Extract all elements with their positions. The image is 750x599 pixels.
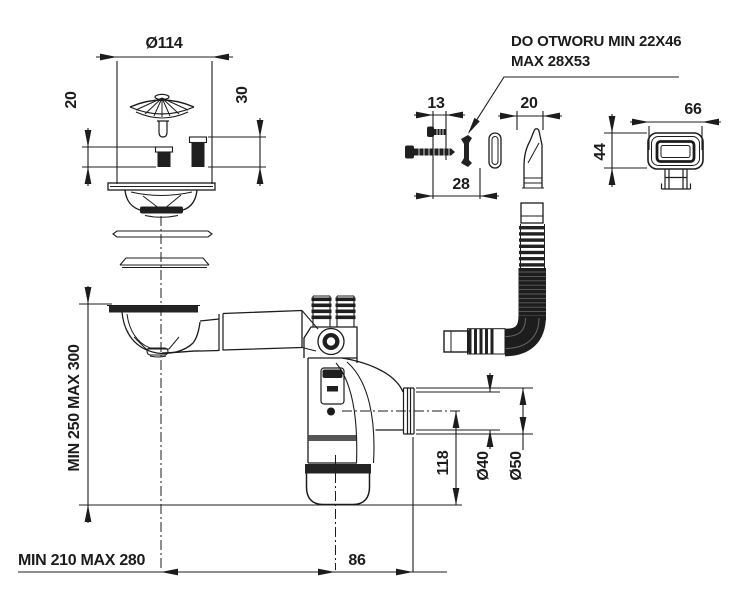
cup-ring xyxy=(305,464,371,474)
brand-badge xyxy=(321,368,344,404)
plug-small xyxy=(158,152,171,168)
inlet-ports xyxy=(312,296,356,327)
hole-size-note: DO OTWORU MIN 22X46 MAX 28X53 xyxy=(511,32,681,72)
screw-short xyxy=(427,127,446,138)
label-plug-large-height: 30 xyxy=(235,86,251,103)
bevel-gasket xyxy=(120,258,209,268)
siphon-installation-drawing xyxy=(0,0,750,599)
flat-gasket xyxy=(113,231,212,237)
label-plug-small-height: 20 xyxy=(64,91,80,108)
label-strainer-diameter: Ø114 xyxy=(145,36,182,52)
sunk-flange xyxy=(109,306,198,313)
inlet-pipe xyxy=(223,311,302,351)
technical-drawing-page: Ø114 20 30 DO OTWORU MIN 22X46 MAX 28X53… xyxy=(0,0,750,599)
label-outlet-offset: 86 xyxy=(348,553,365,569)
overflow-gasket xyxy=(489,133,501,168)
dimension-lines xyxy=(18,54,721,576)
plug-large xyxy=(192,142,205,167)
label-install-height-range: MIN 250 MAX 300 xyxy=(67,344,83,471)
mounting-clip xyxy=(461,135,472,167)
hole-size-note-line1: DO OTWORU MIN 22X46 xyxy=(511,32,681,52)
siphon-assembly xyxy=(107,296,414,505)
overflow-elbow xyxy=(522,129,544,188)
cleanout-dot xyxy=(327,408,335,416)
screw-long xyxy=(405,146,455,159)
overflow-cover xyxy=(648,133,703,189)
label-outlet-height: 118 xyxy=(436,451,452,476)
cover-stub xyxy=(662,169,691,189)
overflow-parts xyxy=(405,127,546,355)
plug-large-flange xyxy=(190,137,207,143)
label-screw-long: 28 xyxy=(452,177,469,193)
note-leader xyxy=(469,77,679,132)
label-elbow-width: 20 xyxy=(520,96,537,112)
plug-small-flange xyxy=(156,147,173,152)
flexible-hose xyxy=(444,203,546,354)
label-cover-height: 44 xyxy=(593,143,609,160)
label-screw-short: 13 xyxy=(427,96,444,112)
hole-size-note-line2: MAX 28X53 xyxy=(511,52,681,72)
trap-cup xyxy=(307,474,370,505)
strainer-spokes xyxy=(136,98,188,117)
pipe-joint xyxy=(219,314,223,352)
body-band xyxy=(309,435,357,441)
label-pipe-diameter: Ø40 xyxy=(476,451,492,480)
label-cover-width: 66 xyxy=(684,102,701,118)
label-nut-diameter: Ø50 xyxy=(509,451,525,480)
label-install-width-range: MIN 210 MAX 280 xyxy=(18,553,145,569)
bowl-thread-ring xyxy=(140,207,183,214)
